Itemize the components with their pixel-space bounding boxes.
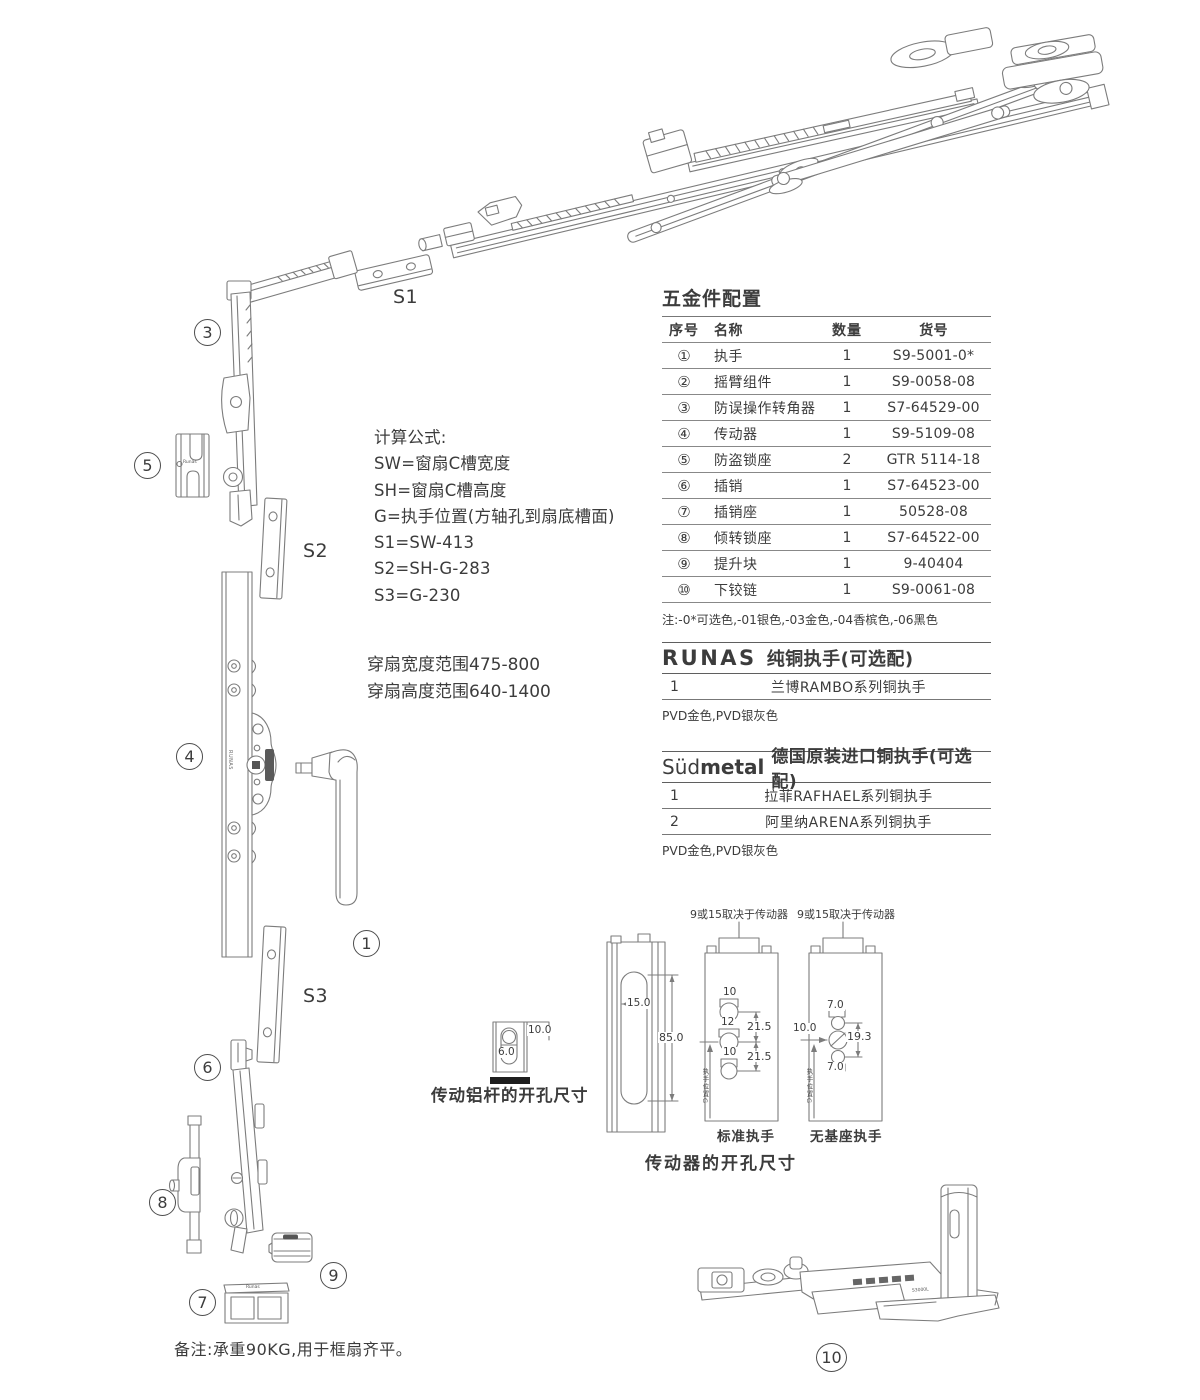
- keeper-brand-engraving: Runas: [183, 461, 197, 466]
- callout-10: 10: [816, 1343, 847, 1372]
- sudmetal-logo-light: Süd: [662, 755, 700, 779]
- row-name: 下铰链: [706, 580, 818, 600]
- stay-arm-drawing: [417, 27, 1109, 261]
- row-no: ④: [662, 425, 706, 443]
- table-row: ⑦ 插销座 1 50528-08: [662, 499, 991, 525]
- row-code: 50528-08: [876, 504, 991, 520]
- row-name: 防盗锁座: [706, 450, 818, 470]
- row-no: ⑨: [662, 555, 706, 573]
- dim-profile-height: 85.0: [658, 1032, 685, 1043]
- row-code: S7-64529-00: [876, 400, 991, 416]
- callout-1-number: 1: [361, 934, 371, 953]
- row-name: 防误操作转角器: [706, 398, 818, 418]
- option-name: 阿里纳ARENA系列铜执手: [765, 812, 932, 832]
- axis-label-standard: 执手位置G: [700, 1068, 710, 1104]
- row-code: S7-64523-00: [876, 478, 991, 494]
- bolt-drawing: [225, 1040, 267, 1253]
- dim-profile-width: 15.0: [626, 998, 651, 1009]
- exploded-diagram: [0, 0, 1200, 1400]
- table-row: ⑥ 插销 1 S7-64523-00: [662, 473, 991, 499]
- formula-line: SW=窗扇C槽宽度: [374, 451, 615, 477]
- sudmetal-finish-note: PVD金色,PVD银灰色: [662, 835, 991, 859]
- label-s2: S2: [303, 540, 328, 562]
- callout-8-number: 8: [157, 1193, 167, 1212]
- row-no: ⑧: [662, 529, 706, 547]
- runas-logo: RUNAS: [662, 646, 757, 670]
- corner-drive-drawing: [222, 250, 358, 526]
- s3-plate-drawing: [257, 926, 286, 1063]
- row-code: S9-5109-08: [876, 426, 991, 442]
- row-name: 插销座: [706, 502, 818, 522]
- row-qty: 1: [818, 530, 876, 546]
- dim-nobase-top: 7.0: [826, 1000, 845, 1011]
- row-qty: 1: [818, 478, 876, 494]
- table-row: ⑨ 提升块 1 9-40404: [662, 551, 991, 577]
- col-header-qty: 数量: [818, 320, 876, 340]
- col-header-name: 名称: [706, 320, 818, 340]
- row-name: 提升块: [706, 554, 818, 574]
- option-no: 1: [662, 679, 706, 695]
- formula-line: S3=G-230: [374, 583, 615, 609]
- axis-label-no-base: 执手位置G: [804, 1068, 814, 1104]
- list-item: 2 阿里纳ARENA系列铜执手: [662, 809, 991, 835]
- row-name: 传动器: [706, 424, 818, 444]
- option-no: 1: [662, 788, 706, 804]
- row-qty: 1: [818, 374, 876, 390]
- dim-std-hole-1: 10: [722, 987, 737, 998]
- row-qty: 1: [818, 348, 876, 364]
- drive-bar-brand-engraving: RUNAS: [227, 750, 232, 770]
- row-name: 执手: [706, 346, 818, 366]
- hinge-drawing: [698, 1185, 999, 1321]
- row-qty: 1: [818, 504, 876, 520]
- row-no: ③: [662, 399, 706, 417]
- callout-5: 5: [134, 452, 161, 479]
- formula-block: 计算公式: SW=窗扇C槽宽度 SH=窗扇C槽高度 G=执手位置(方轴孔到扇底槽…: [374, 425, 615, 609]
- hardware-table-header: 序号 名称 数量 货号: [662, 316, 991, 343]
- callout-10-number: 10: [821, 1348, 841, 1367]
- row-no: ②: [662, 373, 706, 391]
- label-s3: S3: [303, 985, 328, 1007]
- row-no: ①: [662, 347, 706, 365]
- catalog-page: 3 5 4 1 6 8 9 7 10 S1 S2 S3 计算公式: SW=窗扇C…: [0, 0, 1200, 1400]
- table-row: ③ 防误操作转角器 1 S7-64529-00: [662, 395, 991, 421]
- sudmetal-logo-bold: metal: [700, 755, 764, 779]
- callout-6-number: 6: [202, 1058, 212, 1077]
- option-name: 拉菲RAFHAEL系列铜执手: [764, 786, 933, 806]
- row-code: S9-0061-08: [876, 582, 991, 598]
- callout-7: 7: [189, 1289, 216, 1316]
- table-row: ① 执手 1 S9-5001-0*: [662, 343, 991, 369]
- table-row: ④ 传动器 1 S9-5109-08: [662, 421, 991, 447]
- table-row: ⑤ 防盗锁座 2 GTR 5114-18: [662, 447, 991, 473]
- sudmetal-logo: Südmetal: [662, 755, 764, 779]
- callout-4: 4: [176, 743, 203, 770]
- load-capacity-note: 备注:承重90KG,用于框扇齐平。: [174, 1336, 412, 1360]
- callout-1: 1: [353, 930, 380, 957]
- row-name: 摇臂组件: [706, 372, 818, 392]
- list-item: 1 兰博RAMBO系列铜执手: [662, 674, 991, 700]
- callout-3: 3: [194, 319, 221, 346]
- row-code: S9-0058-08: [876, 374, 991, 390]
- dim-nobase-span: 19.3: [846, 1031, 873, 1042]
- sudmetal-section-title: Südmetal 德国原装进口铜执手(可选配): [662, 751, 991, 783]
- table-row: ⑩ 下铰链 1 S9-0061-08: [662, 577, 991, 603]
- callout-8: 8: [149, 1189, 176, 1216]
- col-header-no: 序号: [662, 320, 706, 340]
- hardware-config-table: 五金件配置 序号 名称 数量 货号 ① 执手 1 S9-5001-0* ② 摇臂…: [662, 286, 991, 628]
- row-qty: 1: [818, 582, 876, 598]
- callout-4-number: 4: [184, 747, 194, 766]
- dim-rod-hole: 6.0: [497, 1047, 516, 1058]
- sash-height-range: 穿扇高度范围640-1400: [367, 679, 551, 706]
- s2-plate-drawing: [260, 498, 287, 599]
- callout-7-number: 7: [197, 1293, 207, 1312]
- callout-9-number: 9: [328, 1266, 338, 1285]
- sudmetal-optional-section: Südmetal 德国原装进口铜执手(可选配) 1 拉菲RAFHAEL系列铜执手…: [662, 751, 991, 859]
- row-qty: 2: [818, 452, 876, 468]
- row-no: ⑤: [662, 451, 706, 469]
- dim-std-spacing-2: 21.5: [746, 1051, 773, 1062]
- row-code: S9-5001-0*: [876, 348, 991, 364]
- driver-drill-caption: 传动器的开孔尺寸: [645, 1149, 797, 1174]
- color-option-note: 注:-0*可选色,-01银色,-03金色,-04香槟色,-06黑色: [662, 610, 991, 628]
- dim-nobase-bottom: 7.0: [826, 1062, 845, 1073]
- row-qty: 1: [818, 400, 876, 416]
- runas-finish-note: PVD金色,PVD银灰色: [662, 700, 991, 724]
- tilt-keeper-drawing: [170, 1116, 202, 1253]
- row-no: ⑦: [662, 503, 706, 521]
- formula-title: 计算公式:: [374, 425, 615, 451]
- bolt-base-brand-engraving: Runas: [246, 1286, 260, 1291]
- col-header-code: 货号: [876, 320, 991, 340]
- row-qty: 1: [818, 426, 876, 442]
- keeper-drawing: [176, 434, 209, 497]
- depends-note-no-base: 9或15取决于传动器: [797, 906, 895, 922]
- option-name: 兰博RAMBO系列铜执手: [771, 677, 926, 697]
- row-no: ⑥: [662, 477, 706, 495]
- callout-5-number: 5: [142, 456, 152, 475]
- row-name: 插销: [706, 476, 818, 496]
- dim-rod-width: 10.0: [527, 1025, 552, 1036]
- formula-line: S1=SW-413: [374, 530, 615, 556]
- sudmetal-title-text: 德国原装进口铜执手(可选配): [771, 742, 991, 792]
- row-code: 9-40404: [876, 556, 991, 572]
- row-no: ⑩: [662, 581, 706, 599]
- row-name: 倾转锁座: [706, 528, 818, 548]
- formula-line: S2=SH-G-283: [374, 556, 615, 582]
- row-code: GTR 5114-18: [876, 452, 991, 468]
- formula-line: SH=窗扇C槽高度: [374, 478, 615, 504]
- option-no: 2: [662, 814, 706, 830]
- runas-section-title: RUNAS 纯铜执手(可选配): [662, 642, 991, 674]
- rod-drill-caption: 传动铝杆的开孔尺寸: [431, 1082, 589, 1106]
- row-code: S7-64522-00: [876, 530, 991, 546]
- hardware-table-title: 五金件配置: [662, 286, 991, 316]
- runas-optional-section: RUNAS 纯铜执手(可选配) 1 兰博RAMBO系列铜执手 PVD金色,PVD…: [662, 642, 991, 724]
- label-s1: S1: [393, 286, 418, 308]
- table-row: ⑧ 倾转锁座 1 S7-64522-00: [662, 525, 991, 551]
- dim-std-hole-3: 10: [722, 1047, 737, 1058]
- dim-nobase-left: 10.0: [792, 1023, 817, 1034]
- depends-note-standard: 9或15取决于传动器: [690, 906, 788, 922]
- dim-std-spacing-1: 21.5: [746, 1021, 773, 1032]
- handle-drawing: [296, 750, 357, 905]
- callout-3-number: 3: [202, 323, 212, 342]
- no-base-handle-label: 无基座执手: [810, 1125, 883, 1145]
- standard-handle-label: 标准执手: [717, 1125, 775, 1145]
- formula-line: G=执手位置(方轴孔到扇底槽面): [374, 504, 615, 530]
- sash-range-block: 穿扇宽度范围475-800 穿扇高度范围640-1400: [367, 652, 551, 706]
- row-qty: 1: [818, 556, 876, 572]
- lift-block-drawing: [269, 1233, 312, 1262]
- dim-std-hole-2: 12: [720, 1017, 735, 1028]
- callout-9: 9: [320, 1262, 347, 1289]
- sash-width-range: 穿扇宽度范围475-800: [367, 652, 551, 679]
- table-row: ② 摇臂组件 1 S9-0058-08: [662, 369, 991, 395]
- callout-6: 6: [194, 1054, 221, 1081]
- runas-title-text: 纯铜执手(可选配): [767, 645, 914, 671]
